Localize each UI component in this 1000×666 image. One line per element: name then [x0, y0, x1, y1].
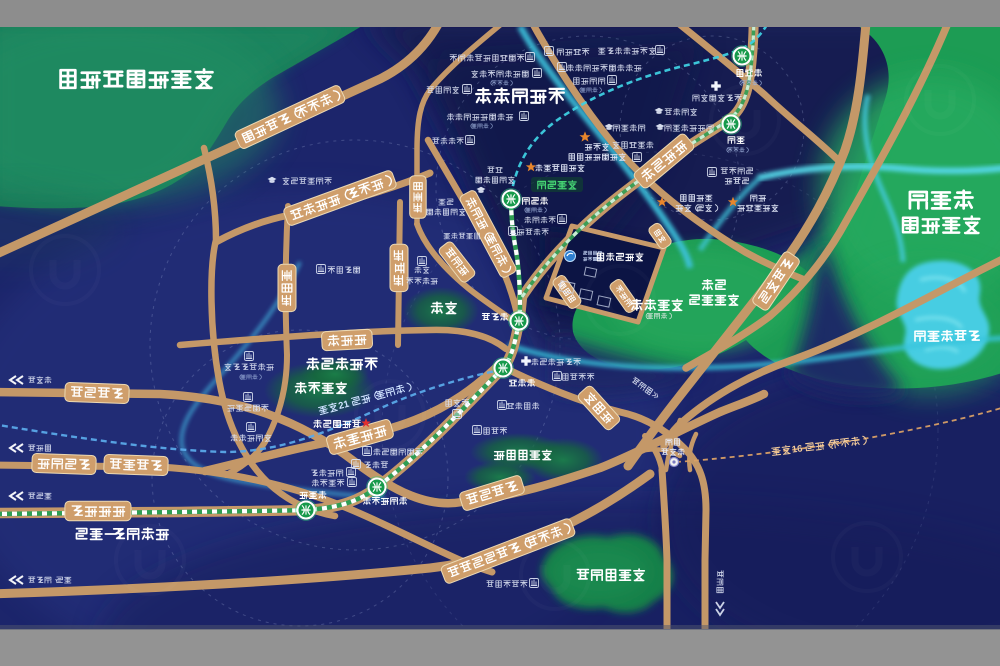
- svg-text:16: 16: [791, 443, 803, 455]
